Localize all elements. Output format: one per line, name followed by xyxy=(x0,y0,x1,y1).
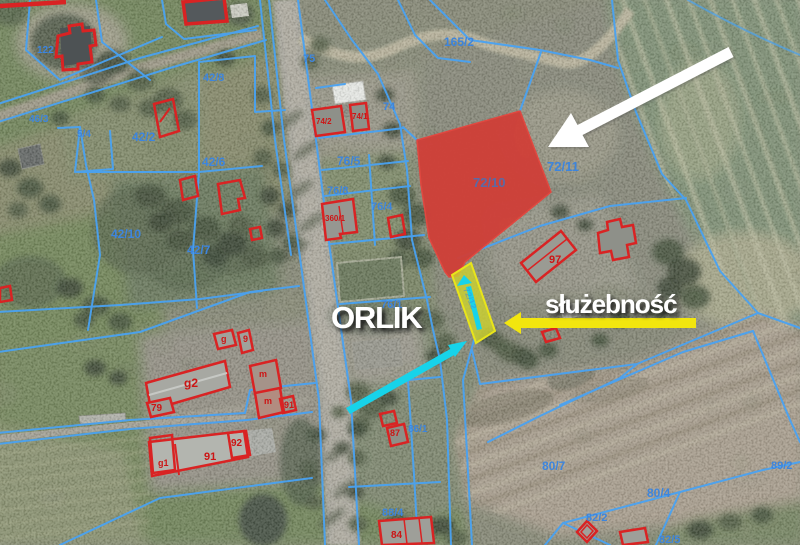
svg-text:91: 91 xyxy=(204,451,216,463)
svg-text:72/10: 72/10 xyxy=(473,175,506,190)
svg-text:87: 87 xyxy=(390,428,400,438)
svg-text:97: 97 xyxy=(549,254,561,266)
svg-text:72/11: 72/11 xyxy=(547,159,579,174)
svg-text:80/4: 80/4 xyxy=(647,486,671,500)
svg-text:m: m xyxy=(259,369,267,379)
svg-text:86/1: 86/1 xyxy=(408,424,428,435)
svg-text:g: g xyxy=(221,334,227,344)
svg-text:84: 84 xyxy=(391,530,403,541)
svg-text:79: 79 xyxy=(151,403,163,414)
svg-text:75: 75 xyxy=(303,53,315,65)
svg-text:76/4: 76/4 xyxy=(371,201,393,213)
svg-text:42/8: 42/8 xyxy=(203,72,224,84)
svg-text:74/2: 74/2 xyxy=(316,117,332,126)
svg-text:m: m xyxy=(264,396,272,406)
svg-text:służebność: służebność xyxy=(545,289,677,319)
svg-text:46/3: 46/3 xyxy=(29,114,49,125)
svg-text:80/7: 80/7 xyxy=(542,459,566,473)
svg-text:360/1: 360/1 xyxy=(325,214,346,223)
svg-text:42/2: 42/2 xyxy=(132,130,156,144)
svg-text:74: 74 xyxy=(383,101,396,113)
svg-text:42/10: 42/10 xyxy=(111,227,141,241)
svg-text:5/4: 5/4 xyxy=(77,129,91,140)
svg-text:76/8: 76/8 xyxy=(327,185,348,197)
svg-text:74/1: 74/1 xyxy=(352,112,368,121)
svg-text:92: 92 xyxy=(231,438,243,449)
svg-text:89/2: 89/2 xyxy=(771,460,792,472)
svg-text:82/5: 82/5 xyxy=(659,534,680,545)
svg-text:82/2: 82/2 xyxy=(586,512,607,524)
svg-text:88/4: 88/4 xyxy=(382,507,404,519)
svg-text:9: 9 xyxy=(243,334,248,344)
svg-text:42/7: 42/7 xyxy=(187,243,211,257)
svg-text:42/6: 42/6 xyxy=(202,155,226,169)
svg-text:91: 91 xyxy=(284,400,294,410)
svg-text:165/2: 165/2 xyxy=(444,35,474,49)
svg-text:76/5: 76/5 xyxy=(337,154,361,168)
svg-text:g2: g2 xyxy=(184,376,198,390)
svg-text:g1: g1 xyxy=(158,458,169,468)
svg-text:122: 122 xyxy=(37,45,54,56)
svg-text:ORLIK: ORLIK xyxy=(331,300,423,335)
